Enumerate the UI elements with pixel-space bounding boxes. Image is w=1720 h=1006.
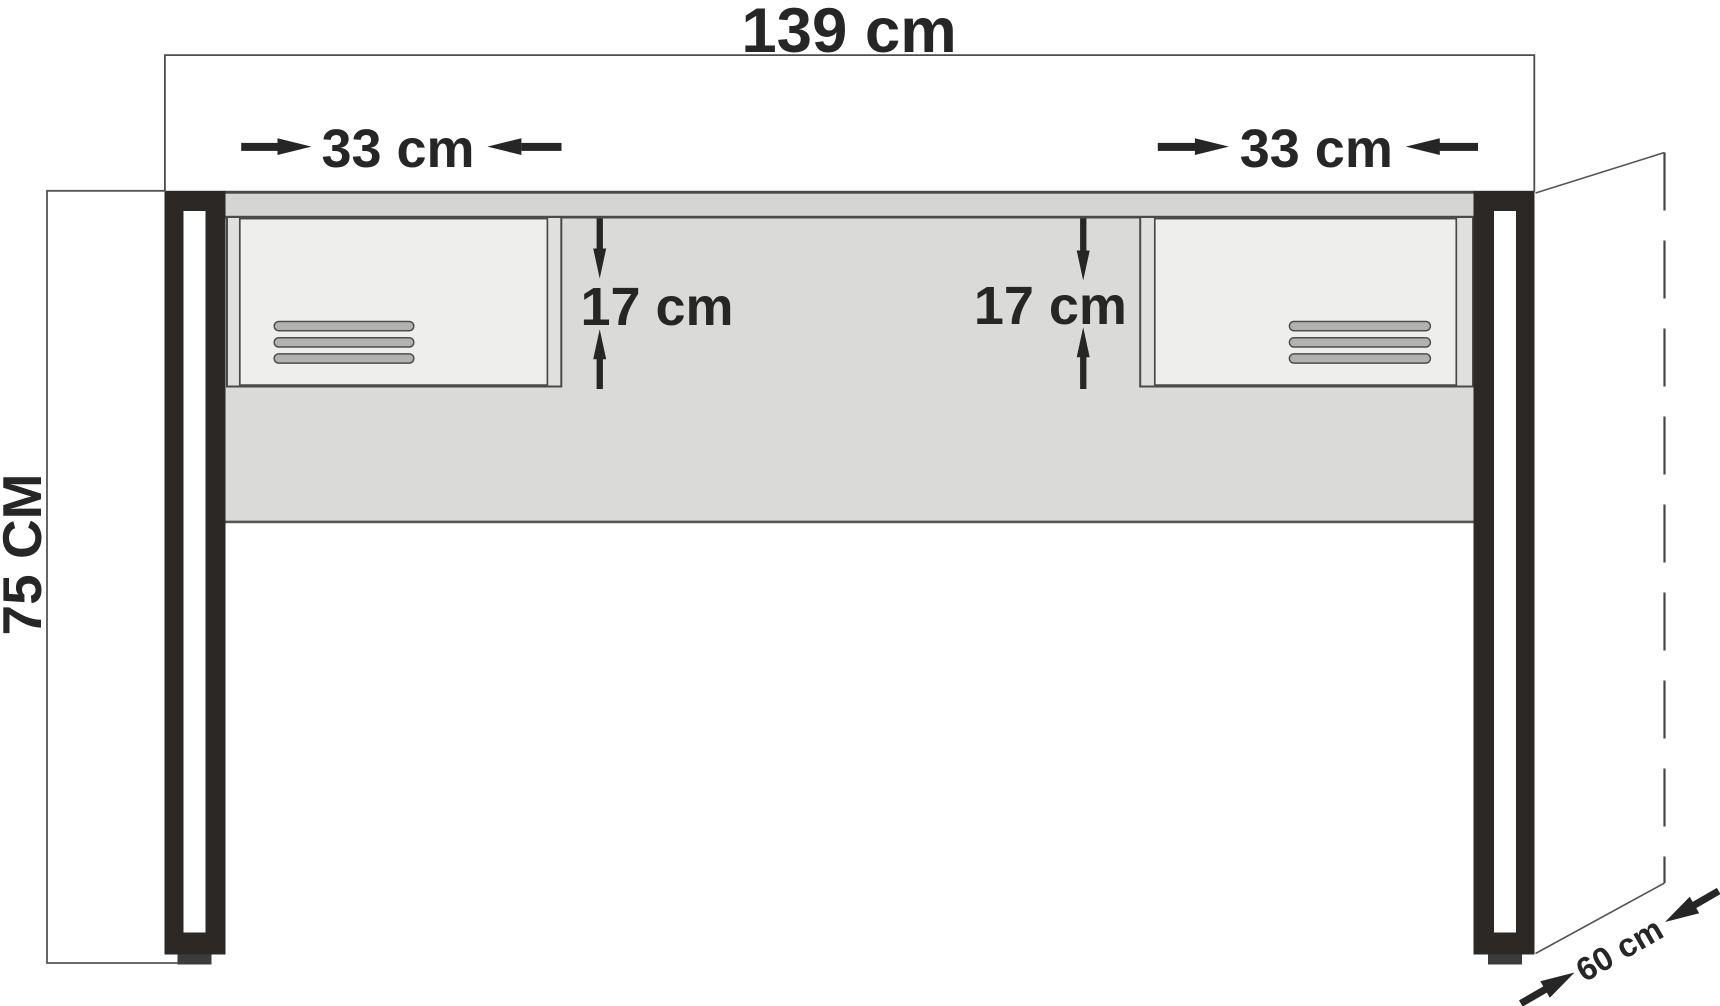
svg-text:139 cm: 139 cm xyxy=(741,0,956,66)
svg-text:33 cm: 33 cm xyxy=(321,119,474,179)
svg-text:60 cm: 60 cm xyxy=(1569,910,1669,989)
svg-text:33 cm: 33 cm xyxy=(1240,119,1393,179)
svg-text:17 cm: 17 cm xyxy=(580,277,733,337)
svg-text:17 cm: 17 cm xyxy=(974,276,1127,336)
svg-text:75 CM: 75 CM xyxy=(0,474,53,636)
